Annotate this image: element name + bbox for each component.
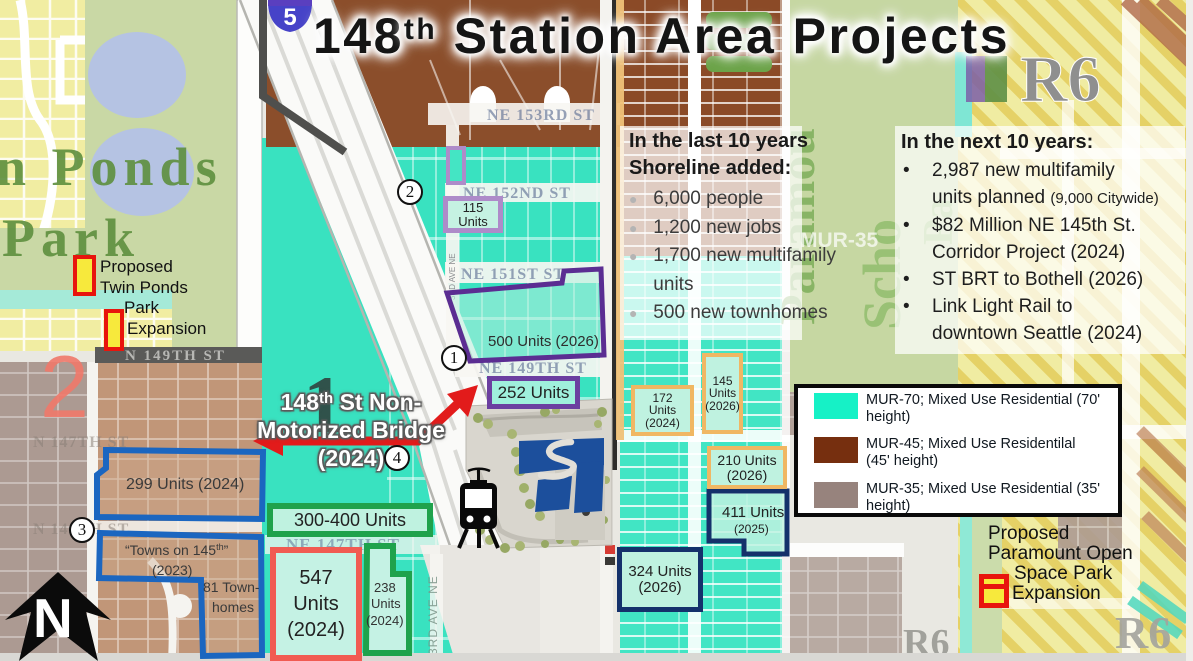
svg-text:NE 149TH ST: NE 149TH ST	[479, 360, 587, 377]
svg-text:299 Units (2024): 299 Units (2024)	[126, 476, 244, 493]
svg-text:homes: homes	[212, 599, 254, 615]
svg-text:(2024): (2024)	[366, 613, 404, 628]
svg-text:N 149TH ST: N 149TH ST	[125, 348, 226, 364]
svg-text:500 Units (2026): 500 Units (2026)	[488, 333, 599, 350]
svg-text:NE 153RD ST: NE 153RD ST	[487, 107, 595, 124]
svg-text:81 Town-: 81 Town-	[203, 579, 260, 595]
svg-text:“Towns on 145th”: “Towns on 145th”	[125, 542, 229, 558]
svg-text:(2023): (2023)	[152, 562, 192, 578]
svg-text:2: 2	[40, 337, 89, 436]
svg-text:n Ponds: n Ponds	[0, 137, 223, 197]
svg-text:Units: Units	[371, 596, 401, 611]
svg-text:238: 238	[374, 580, 396, 595]
svg-text:(2025): (2025)	[734, 522, 769, 536]
svg-text:3RD AVE NE: 3RD AVE NE	[426, 575, 440, 655]
svg-text:R6: R6	[1115, 607, 1171, 658]
svg-text:NE 151ST ST: NE 151ST ST	[461, 266, 565, 283]
svg-text:411 Units: 411 Units	[722, 504, 784, 521]
svg-text:N: N	[33, 587, 73, 649]
